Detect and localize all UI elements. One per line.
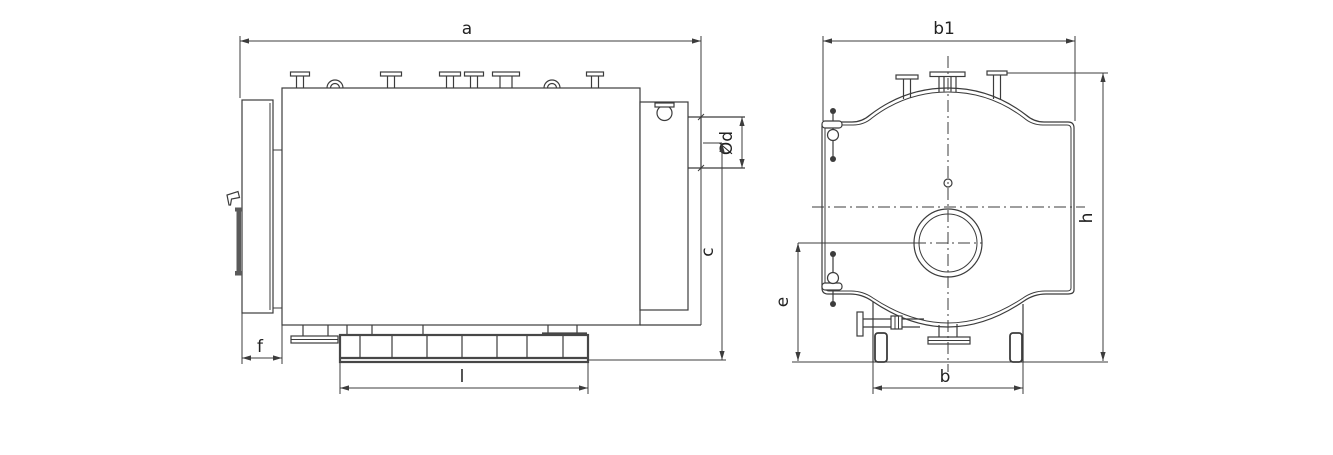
dim-b-label: b (940, 367, 951, 387)
front-view: b1 e h b (773, 19, 1108, 394)
dim-b1-label: b1 (933, 19, 955, 39)
dim-c-label: c (698, 247, 718, 256)
drawing-canvas: a Ød c f (0, 0, 1333, 455)
boiler-dimension-drawing: a Ød c f (0, 0, 1333, 455)
dim-c: c (698, 143, 725, 360)
boiler-body (282, 88, 701, 325)
dim-h-label: h (1077, 213, 1097, 224)
door-hinge-tab-bottom (235, 271, 242, 276)
nozzle (493, 72, 520, 88)
dim-l: l (340, 362, 588, 394)
dim-e-label: e (773, 297, 793, 307)
nozzle (465, 72, 484, 88)
front-door-outline (242, 100, 273, 313)
smokebox-cap-bar (655, 103, 674, 107)
nozzle (587, 72, 604, 88)
base-skid (340, 325, 726, 362)
dim-l-label: l (460, 367, 465, 387)
lifting-lug (327, 80, 343, 88)
top-nozzles (291, 72, 604, 88)
bottom-drain-flange (291, 325, 338, 343)
dim-f: f (242, 313, 282, 364)
smokebox-cap (657, 106, 672, 121)
nozzle (381, 72, 402, 88)
rear-smokebox-outline (640, 102, 688, 310)
door-handle (227, 192, 240, 206)
nozzle (291, 72, 310, 88)
lifting-lug (544, 80, 560, 88)
dim-b: b (873, 362, 1023, 394)
front-door (227, 100, 282, 313)
dim-a-label: a (462, 19, 472, 39)
nozzle (440, 72, 461, 88)
door-hinge-strip (237, 209, 242, 274)
side-view: a Ød c f (227, 19, 745, 394)
boiler-body-outline (282, 88, 640, 325)
foot-right (1010, 333, 1022, 362)
door-hinge-tab-top (235, 208, 242, 212)
rear-smokebox (640, 102, 688, 310)
dim-f-label: f (257, 337, 264, 357)
foot-left (875, 333, 887, 362)
